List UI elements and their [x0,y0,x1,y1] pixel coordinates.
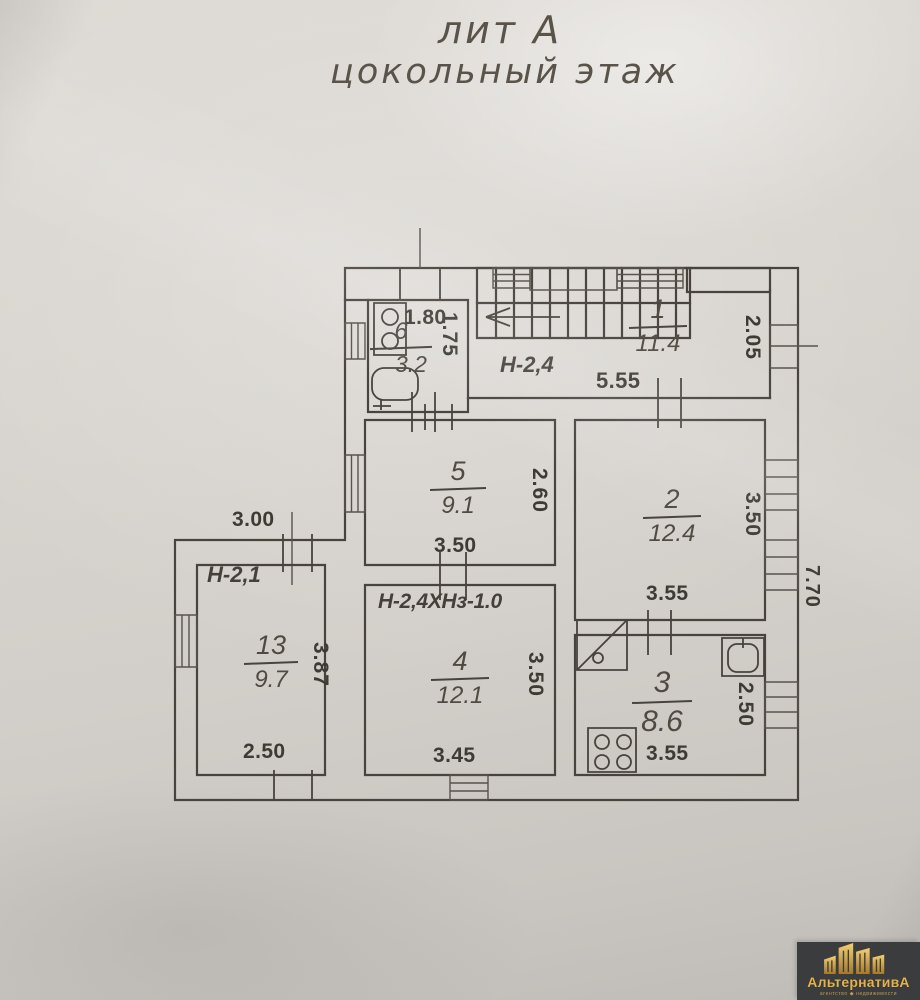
room-label-3: 3 8.6 [622,668,702,738]
label-divider [629,325,687,329]
room-label-13: 13 9.7 [236,632,306,692]
height-note-room4: Н-2,4ХНз-1.0 [378,590,502,614]
label-divider [632,700,692,704]
room-number: 5 [418,458,498,485]
label-divider [370,346,432,350]
room-number: 1 [618,296,698,323]
dim-room3-width: 3.55 [646,742,688,766]
dim-right-side-total: 7.70 [800,565,823,645]
room-number: 3 [622,668,702,698]
dim-room6-depth: 1.75 [437,312,461,372]
agency-tagline: агентство ◆ недвижимости [820,991,897,997]
room-number: 13 [236,632,306,659]
dim-room4-width: 3.45 [433,744,475,768]
room-area: 9.1 [418,493,498,518]
agency-logo: АльтернативА агентство ◆ недвижимости [797,942,920,1000]
dim-room5-width: 3.50 [434,534,476,558]
label-divider [643,515,701,519]
height-note-hall: Н-2,4 [500,352,554,378]
dim-room13-width: 2.50 [243,740,285,764]
room-number: 2 [632,486,712,513]
room-area: 8.6 [622,706,702,738]
label-divider [244,661,298,665]
label-divider [431,677,489,681]
scanned-floor-plan-sheet: лит А цокольный этаж 1 11.4 2 12.4 3 8.6… [0,0,920,1000]
room-area: 12.4 [632,521,712,546]
dim-room13-depth: 3.87 [308,642,332,700]
sheet-title-line1: лит А [390,8,610,52]
dim-room1-window: 2.05 [740,315,764,377]
dim-hall-width: 5.55 [596,368,640,394]
room-label-1: 1 11.4 [618,296,698,356]
dim-room2-width: 3.55 [646,582,688,606]
room-area: 3.2 [378,352,444,376]
dim-room3-depth: 2.50 [733,682,757,738]
dim-room4-depth: 3.50 [523,652,547,708]
height-note-room13: Н-2,1 [207,562,261,588]
sink-icon [722,638,764,676]
room-area: 9.7 [236,667,306,692]
buildings-icon [813,942,905,974]
dim-annex-width: 3.00 [232,508,274,532]
dim-room5-depth: 2.60 [527,468,551,522]
room-label-5: 5 9.1 [418,458,498,518]
room-area: 11.4 [618,331,698,356]
dim-room2-depth: 3.50 [740,492,764,546]
shower-tray-icon [577,620,627,670]
room-label-4: 4 12.1 [420,648,500,708]
room-area: 12.1 [420,683,500,708]
room-number: 4 [420,648,500,675]
agency-name: АльтернативА [807,975,909,989]
label-divider [430,487,486,491]
sheet-title-line2: цокольный этаж [330,52,660,92]
room-label-2: 2 12.4 [632,486,712,546]
